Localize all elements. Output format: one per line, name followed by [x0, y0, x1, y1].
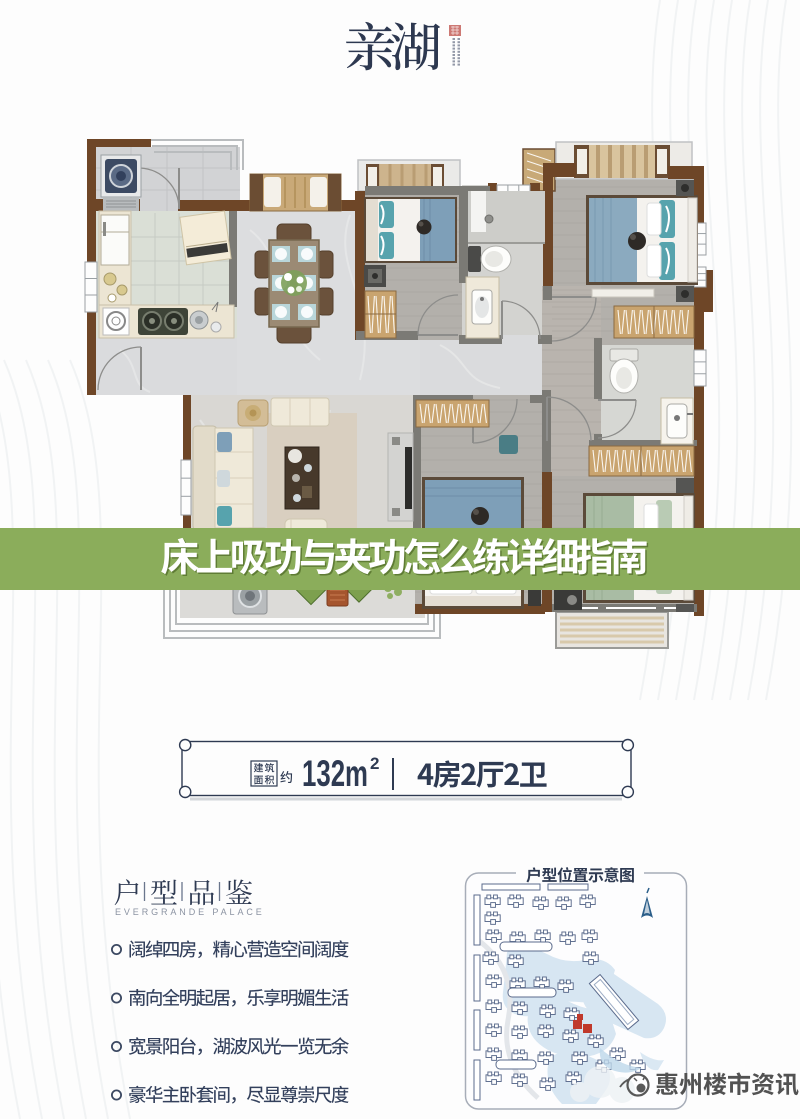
svg-text:132m: 132m [302, 753, 368, 794]
svg-text:2: 2 [370, 754, 379, 773]
svg-text:EVERGRANDE PALACE: EVERGRANDE PALACE [115, 907, 265, 917]
